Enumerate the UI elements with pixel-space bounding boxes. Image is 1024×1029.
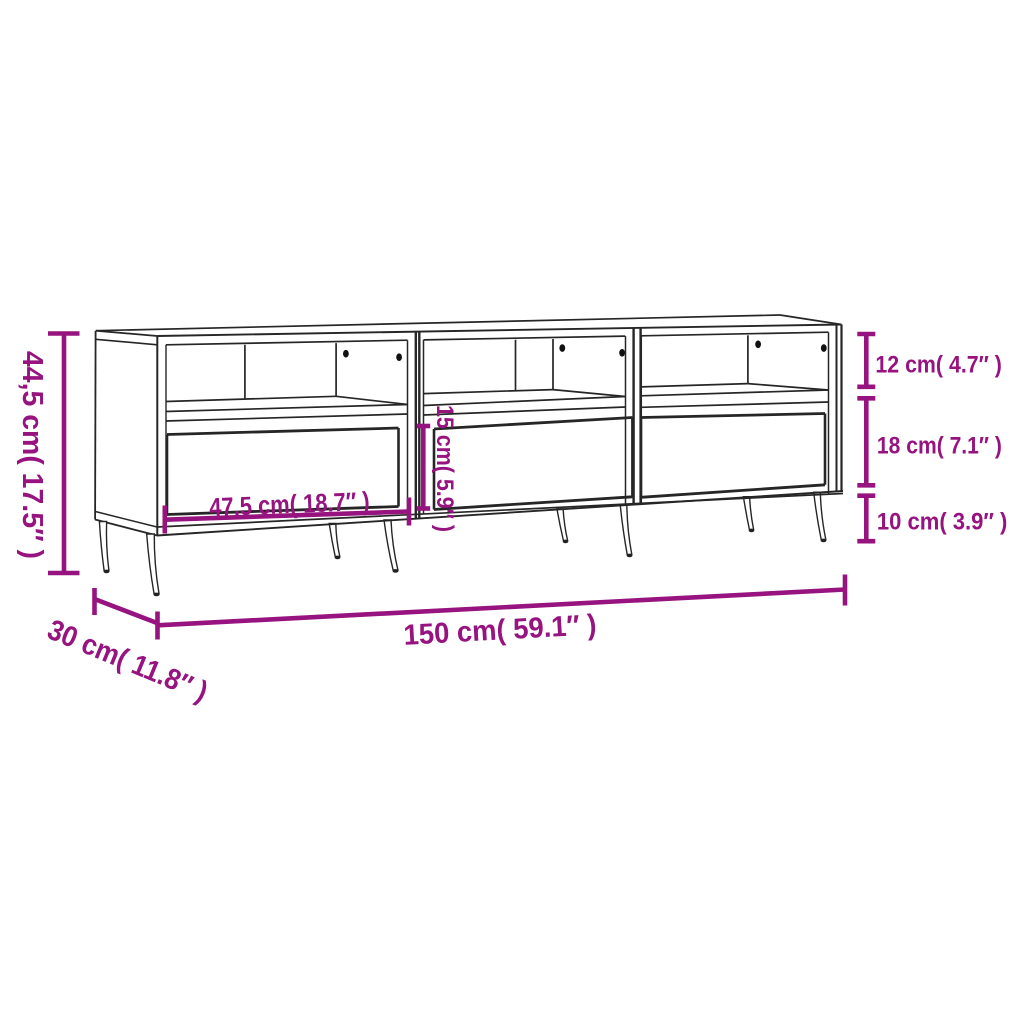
svg-text:15 cm( 5.9″ ): 15 cm( 5.9″ ) (431, 405, 458, 532)
svg-text:10 cm( 3.9″ ): 10 cm( 3.9″ ) (877, 509, 1008, 536)
svg-text:12 cm( 4.7″ ): 12 cm( 4.7″ ) (875, 352, 1002, 379)
svg-text:44,5 cm( 17.5″ ): 44,5 cm( 17.5″ ) (16, 351, 48, 559)
svg-text:18 cm( 7.1″ ): 18 cm( 7.1″ ) (877, 433, 1002, 460)
